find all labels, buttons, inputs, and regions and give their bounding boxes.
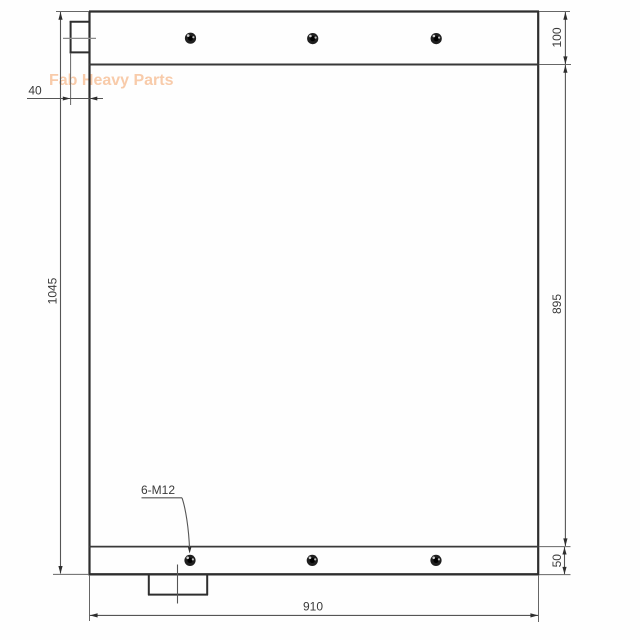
svg-text:100: 100 [550,27,564,47]
svg-text:40: 40 [28,84,42,98]
svg-text:Fab Heavy Parts: Fab Heavy Parts [49,72,174,89]
svg-text:895: 895 [550,294,564,314]
svg-text:50: 50 [550,554,564,568]
svg-text:6-M12: 6-M12 [141,483,175,497]
svg-text:1045: 1045 [46,277,60,304]
svg-text:910: 910 [303,600,323,614]
